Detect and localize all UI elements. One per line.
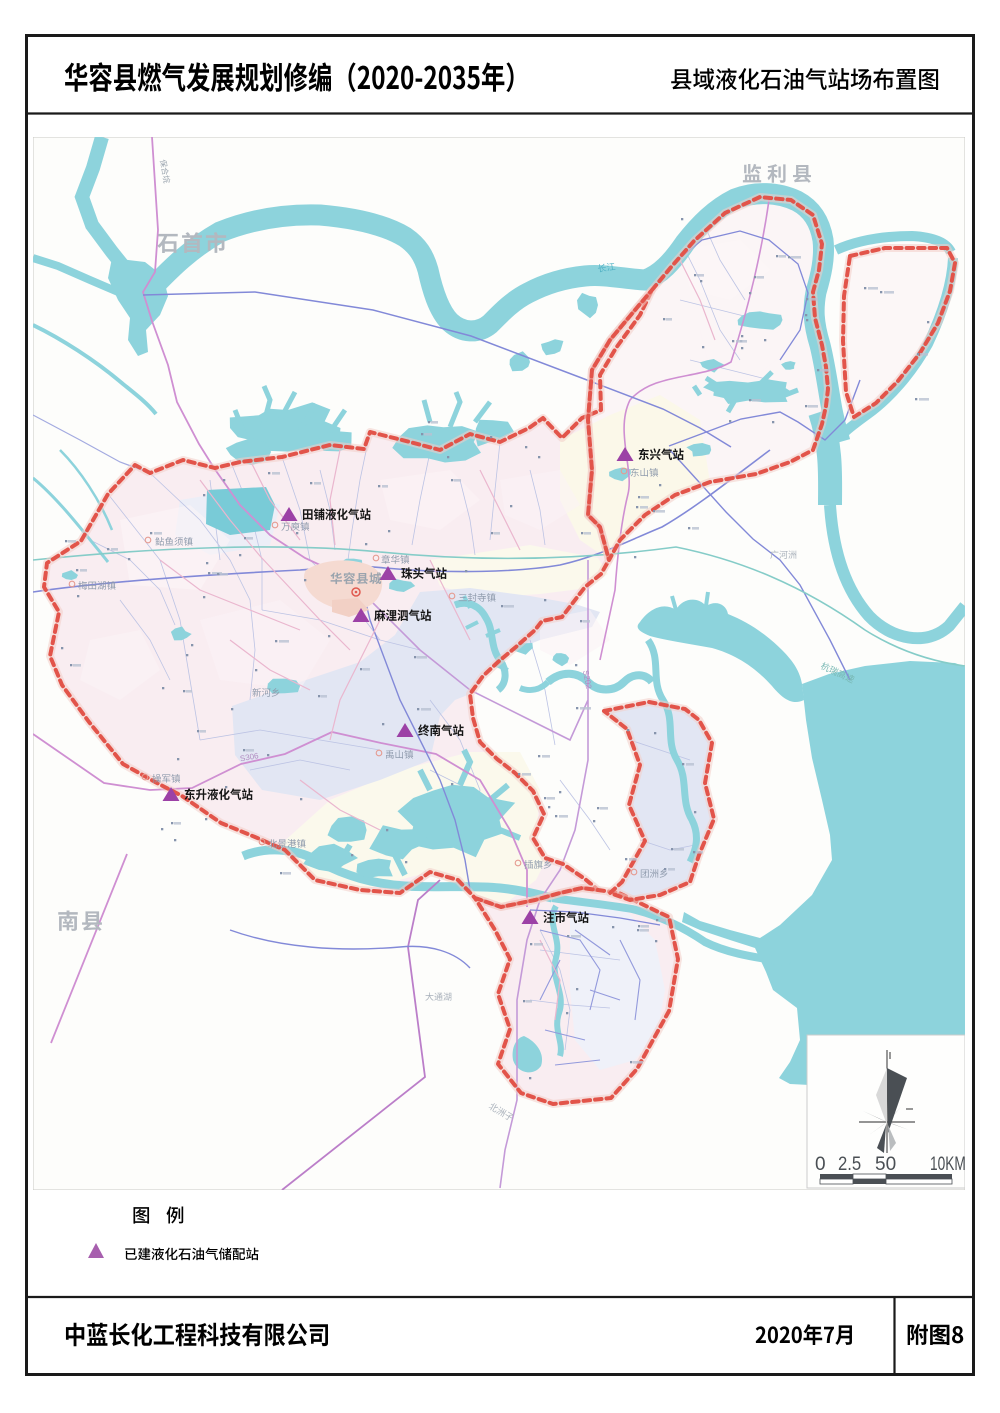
svg-text:10KM: 10KM	[930, 1153, 966, 1175]
svg-text:2.5: 2.5	[838, 1153, 861, 1174]
svg-text:0: 0	[815, 1154, 826, 1175]
svg-text:50: 50	[875, 1154, 896, 1175]
